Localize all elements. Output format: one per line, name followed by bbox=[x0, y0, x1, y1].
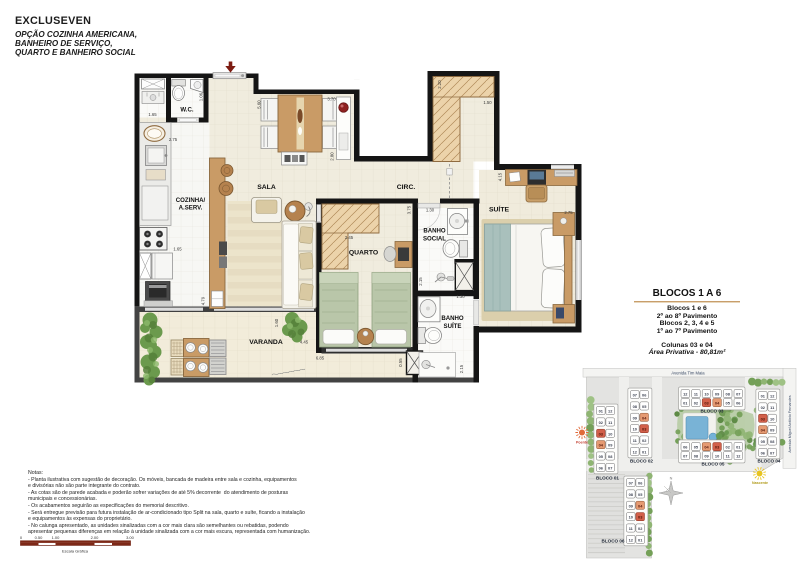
svg-text:3.00: 3.00 bbox=[126, 535, 135, 540]
svg-text:0: 0 bbox=[20, 535, 23, 540]
svg-text:0.50: 0.50 bbox=[35, 535, 44, 540]
svg-text:1.00: 1.00 bbox=[52, 535, 61, 540]
svg-text:2.00: 2.00 bbox=[91, 535, 100, 540]
svg-text:Escala Gráfica: Escala Gráfica bbox=[62, 549, 89, 554]
